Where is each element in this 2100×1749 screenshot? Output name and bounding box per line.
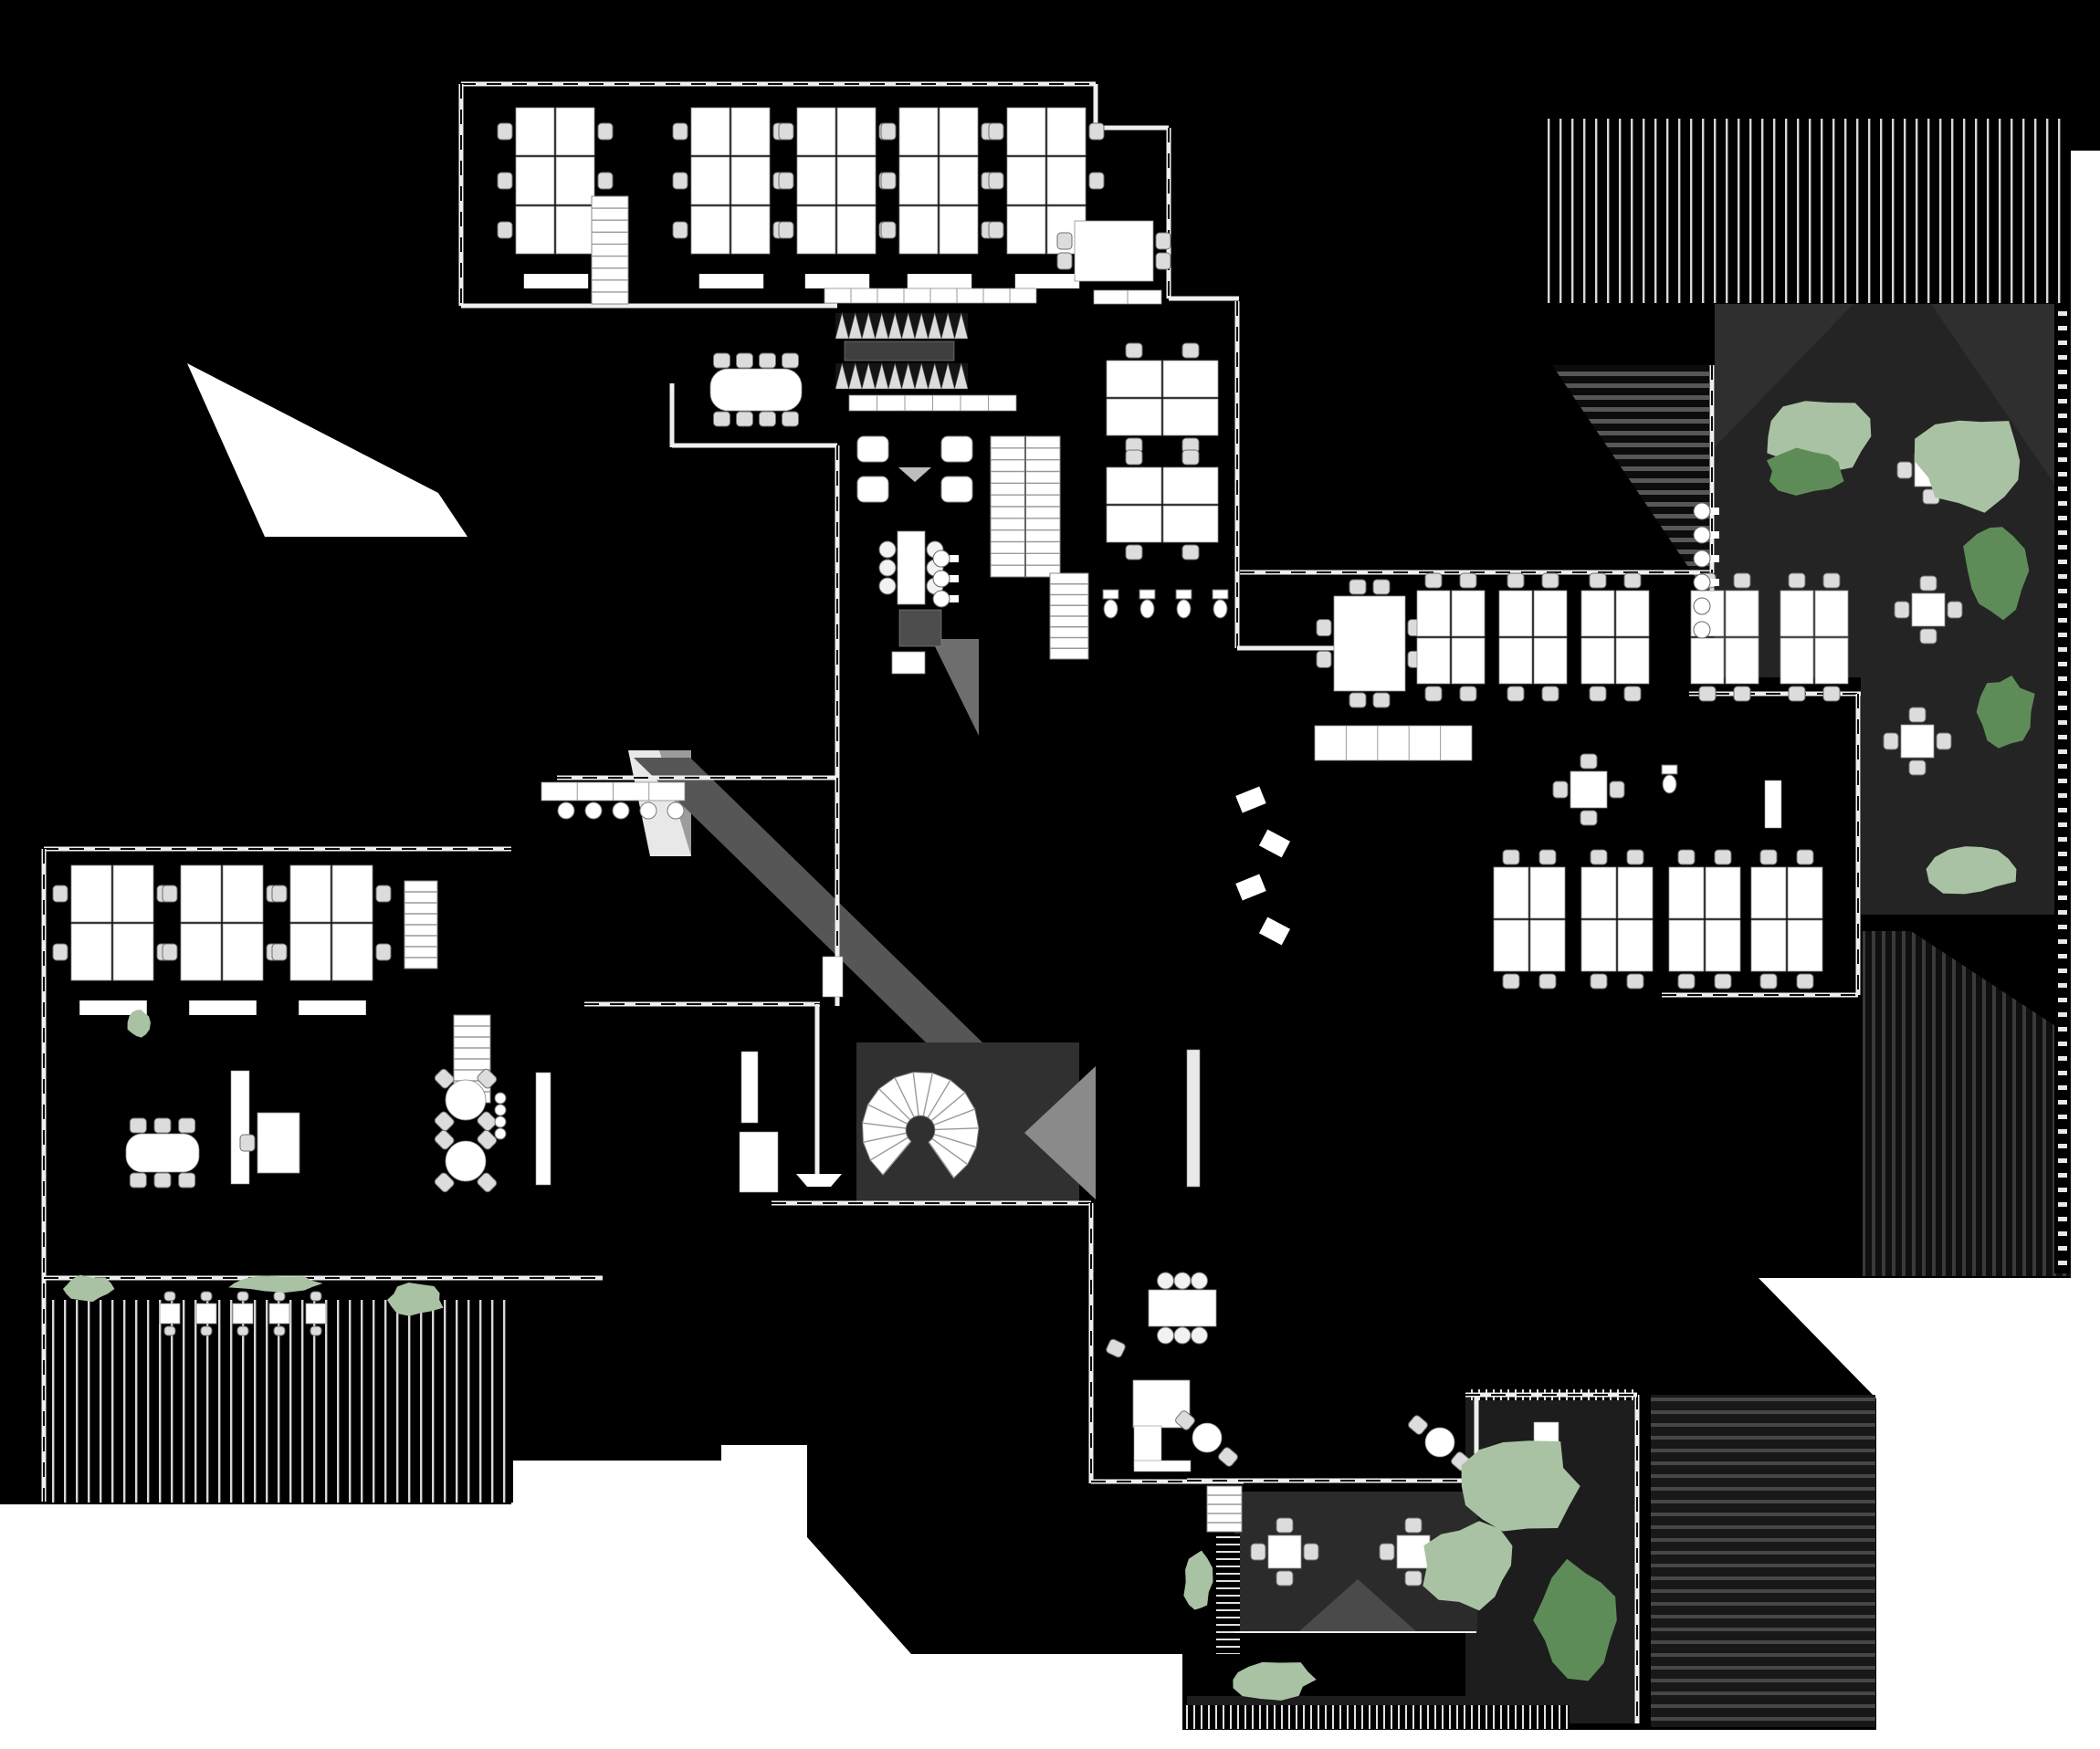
- edge-dots-east: [2054, 304, 2071, 1273]
- tall-cabinet: [231, 1071, 249, 1184]
- floor-plan-canvas: [0, 0, 2100, 1749]
- floor-plan-page: [0, 0, 2100, 1749]
- stair-core-b: [1050, 573, 1088, 659]
- lounge-table-west: [126, 1118, 199, 1188]
- kitchenette-east: [1315, 726, 1472, 760]
- cafe-door: [823, 957, 843, 997]
- shelving-rack-1: [835, 313, 968, 339]
- copy-box: [899, 610, 941, 646]
- cafe-cabinet: [740, 1132, 778, 1192]
- shelving-rack-2: [835, 363, 968, 389]
- cabinet-row-a: [824, 288, 1036, 303]
- cafe-shelf: [741, 1052, 758, 1123]
- stair-west-a: [404, 881, 437, 969]
- page-right-column: [2071, 151, 2100, 1749]
- deck-east: [1651, 1395, 1875, 1727]
- hatch-bottom-wing: [1182, 1705, 1570, 1729]
- low-shelf: [1134, 1461, 1191, 1471]
- wc-east: [1662, 765, 1677, 793]
- desk-return: [1134, 1426, 1161, 1466]
- sinks-core: [933, 550, 959, 607]
- hatch-entry-column: [1216, 1534, 1240, 1654]
- kitchen-row: [1094, 290, 1161, 304]
- cabinet-row-b: [849, 395, 1016, 411]
- stair-top-wing: [592, 196, 628, 304]
- table-2-core: [892, 652, 925, 674]
- meeting-6-south: [1149, 1272, 1216, 1344]
- meeting-6-core: [879, 531, 943, 604]
- entry-steps: [1207, 1486, 1242, 1532]
- radiator: [1187, 1050, 1200, 1187]
- whiteboard: [536, 1073, 551, 1185]
- work-bench: [845, 341, 954, 361]
- cabinet-east: [1765, 780, 1781, 828]
- ne-canopy: [1545, 119, 2069, 303]
- stair-main: [991, 436, 1060, 577]
- coffee-counter: [541, 782, 685, 801]
